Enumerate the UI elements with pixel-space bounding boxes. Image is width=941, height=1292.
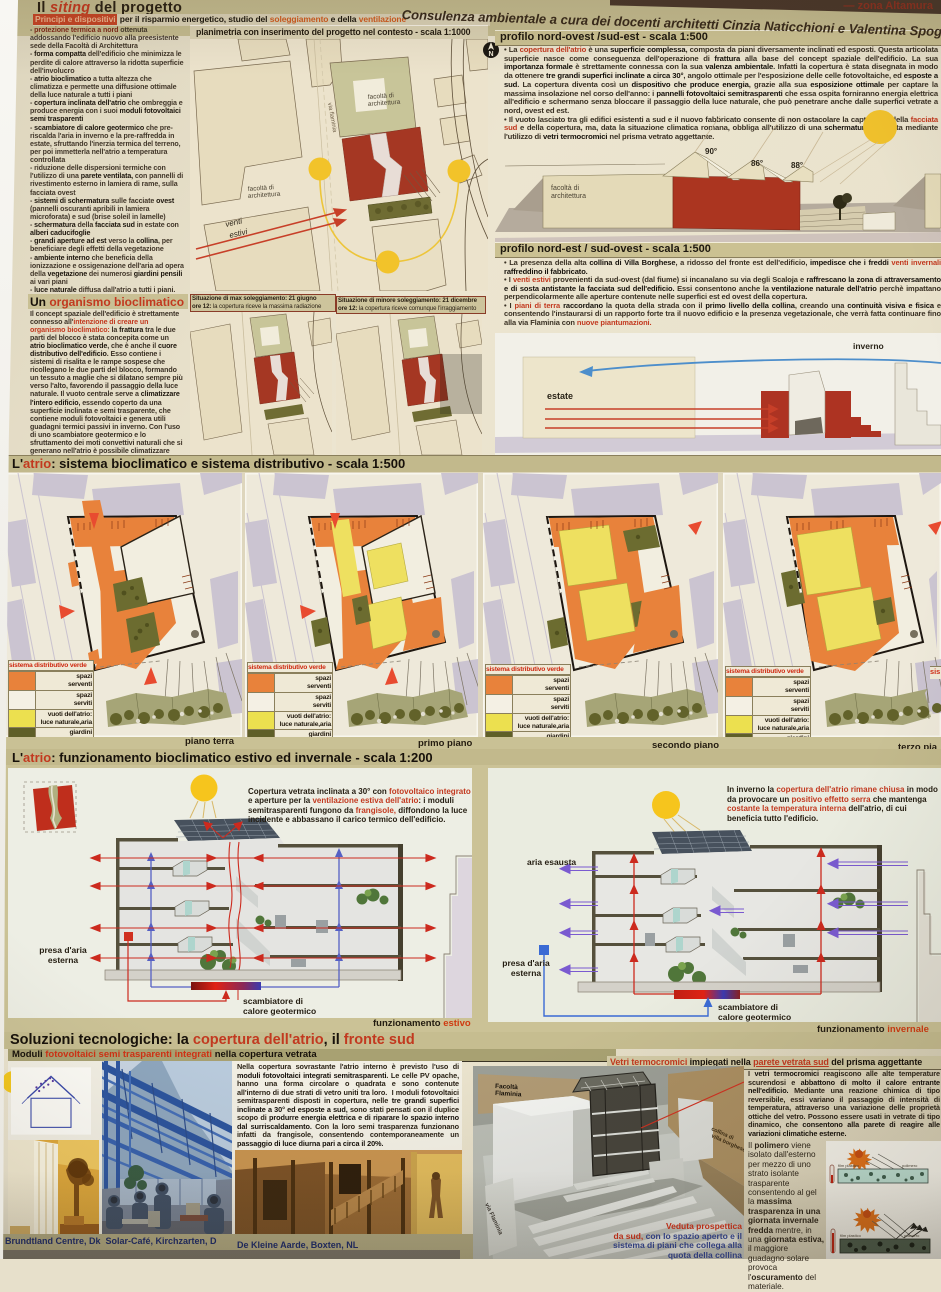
svg-text:polimero: polimero bbox=[902, 1163, 918, 1168]
svg-text:polimero: polimero bbox=[904, 1233, 920, 1238]
svg-text:estate: estate bbox=[547, 391, 573, 401]
svg-text:90°: 90° bbox=[705, 147, 717, 156]
svg-text:inverno: inverno bbox=[853, 341, 884, 351]
svg-text:88°: 88° bbox=[791, 161, 803, 170]
svg-text:architettura: architettura bbox=[551, 193, 586, 200]
svg-text:facoltà di: facoltà di bbox=[551, 185, 579, 192]
svg-text:film plastico: film plastico bbox=[838, 1163, 860, 1168]
svg-text:Flaminia: Flaminia bbox=[495, 1090, 522, 1098]
svg-text:N: N bbox=[488, 51, 493, 58]
svg-text:film plastico: film plastico bbox=[840, 1233, 862, 1238]
svg-text:86°: 86° bbox=[751, 159, 763, 168]
